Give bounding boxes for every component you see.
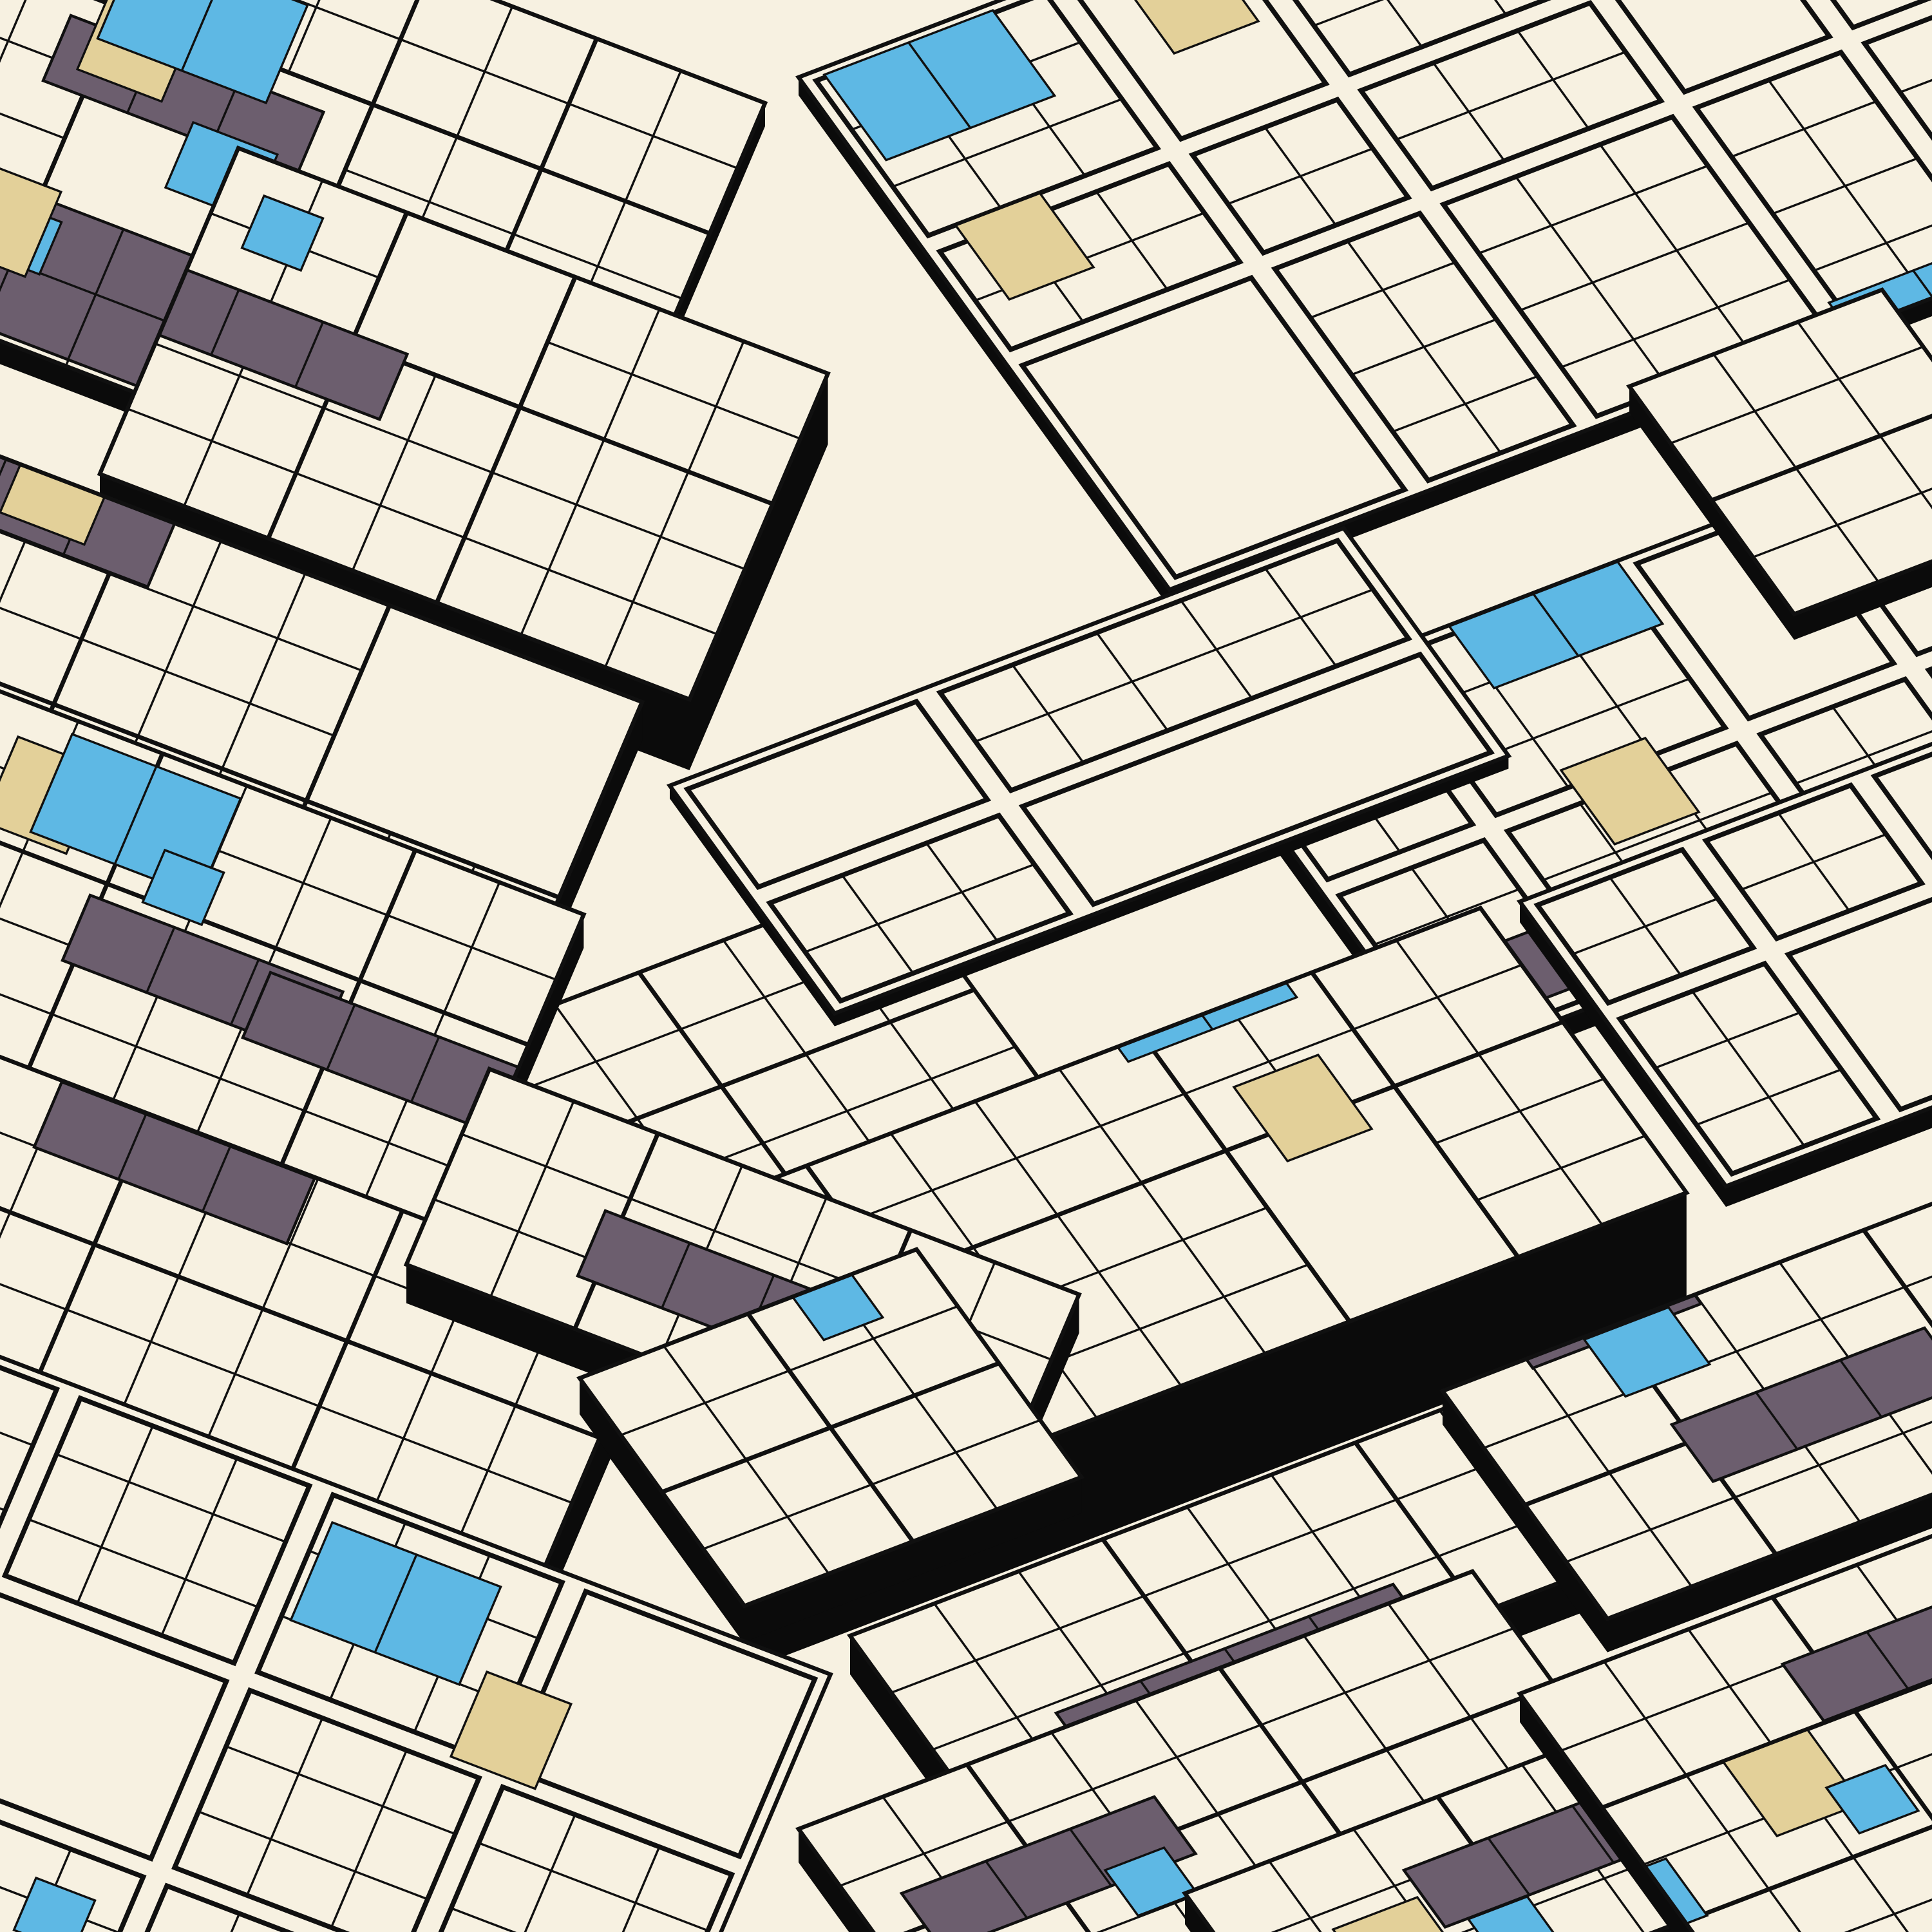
generative-grid-artwork [0, 0, 1932, 1932]
artwork-stage [0, 0, 1932, 1932]
